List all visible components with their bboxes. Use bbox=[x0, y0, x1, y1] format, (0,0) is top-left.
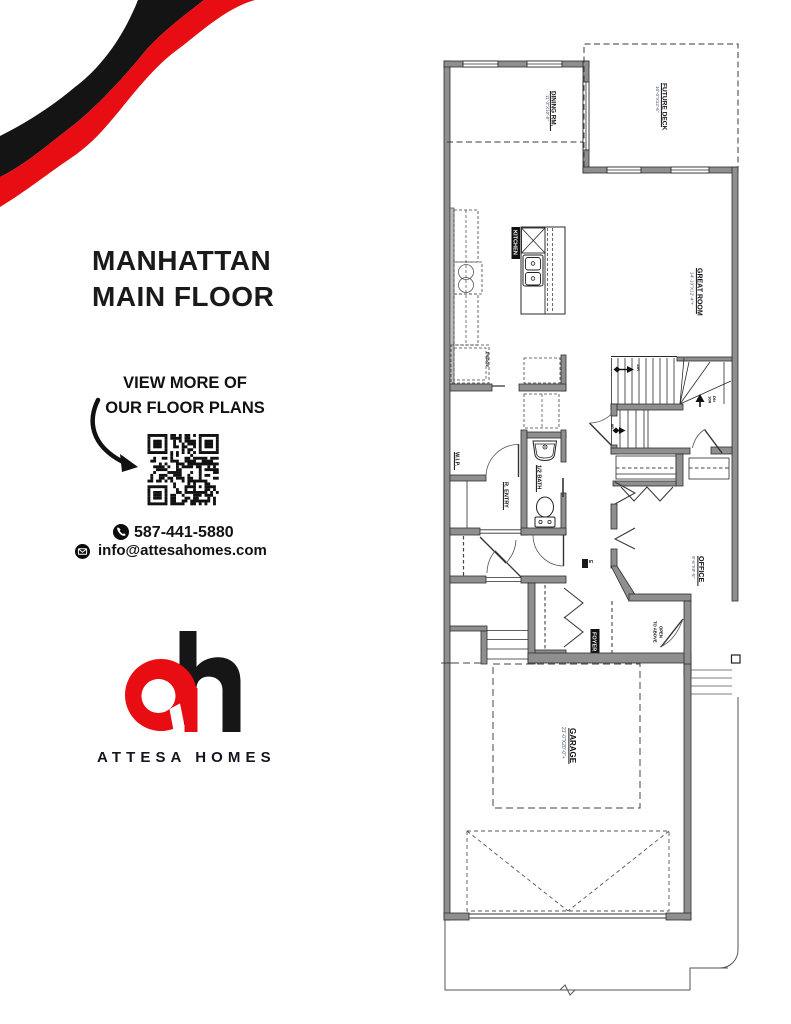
svg-text:11'-3"X10'-8": 11'-3"X10'-8" bbox=[545, 95, 550, 121]
svg-text:TO ABOVE: TO ABOVE bbox=[653, 621, 658, 643]
svg-text:9'-6"X9'-5": 9'-6"X9'-5" bbox=[690, 556, 696, 579]
svg-text:FOYER: FOYER bbox=[591, 632, 597, 651]
svg-text:OPEN: OPEN bbox=[659, 626, 664, 638]
svg-text:10R: 10R bbox=[708, 396, 713, 403]
svg-text:14'-10"X12'-4"+: 14'-10"X12'-4"+ bbox=[689, 272, 695, 305]
svg-text:15R: 15R bbox=[636, 364, 640, 371]
svg-text:KITCHEN: KITCHEN bbox=[512, 230, 518, 255]
svg-text:8R: 8R bbox=[610, 424, 614, 429]
svg-text:FRIDGE: FRIDGE bbox=[485, 352, 490, 367]
svg-text:10'-0"X12'-6": 10'-0"X12'-6" bbox=[655, 86, 660, 113]
svg-text:21'-0"X20'-0"+: 21'-0"X20'-0"+ bbox=[560, 727, 566, 759]
